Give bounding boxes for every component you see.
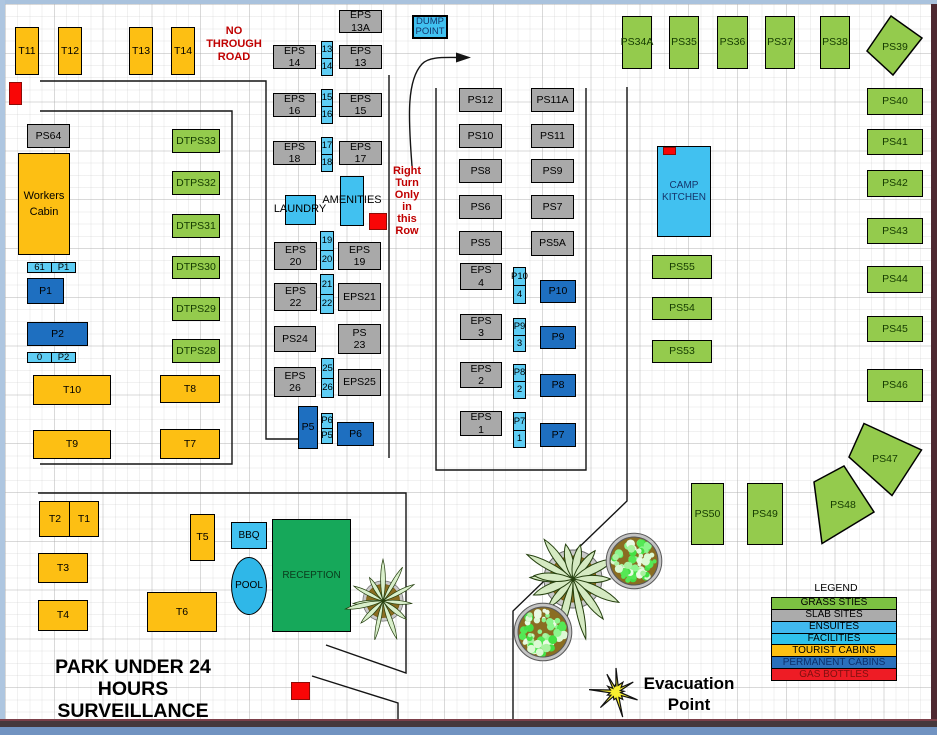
svg-text:PS48: PS48 — [830, 499, 856, 511]
svg-text:PS39: PS39 — [882, 41, 908, 53]
svg-text:PS47: PS47 — [872, 453, 898, 465]
